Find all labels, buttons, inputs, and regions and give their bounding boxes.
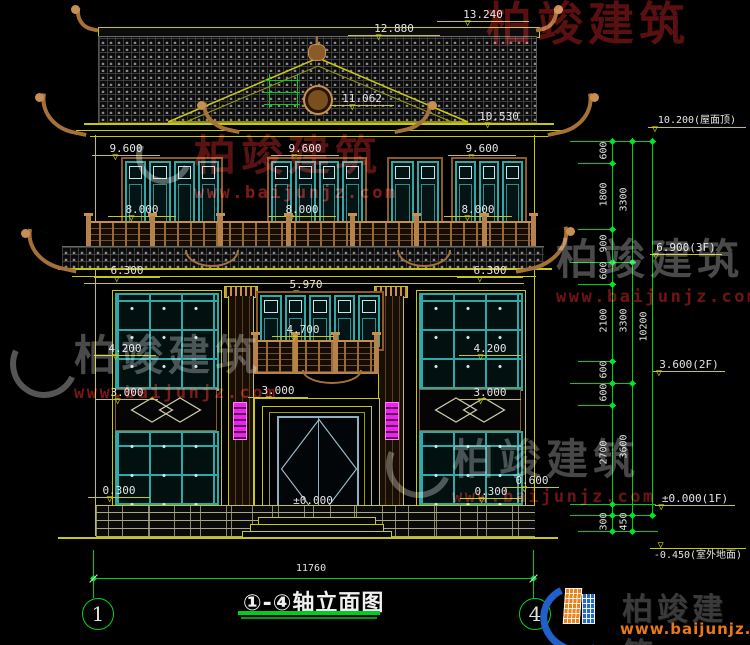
level-marker-icon: ▽: [658, 541, 664, 551]
dim-tick: [609, 138, 616, 145]
watermark-url: www.baijunjz.com: [194, 183, 398, 203]
gable-slope-ornament-right: [392, 106, 434, 130]
eave-horn-right: [544, 98, 596, 132]
elevation-marker: 0.300▽: [88, 484, 150, 498]
dim-segment: 600: [599, 371, 610, 415]
elevation-label: 11.062: [342, 92, 382, 105]
dim-tick: [649, 138, 656, 145]
level-marker-icon: ▽: [107, 495, 113, 505]
dim-segment: 10200: [639, 305, 650, 349]
overall-width-dim: 11760: [296, 563, 326, 574]
elevation-marker: 3.000▽: [459, 386, 521, 400]
dim-segment: 3300: [619, 178, 630, 222]
dim-tick: [629, 528, 636, 535]
watermark: 柏竣建筑 www.baijunjz.com: [556, 226, 750, 307]
level-marker-icon: ▽: [478, 353, 484, 363]
eave-garland: [302, 370, 362, 384]
level-marker-icon: ▽: [478, 397, 484, 407]
level-marker-icon: ▽: [485, 121, 491, 131]
ridge-end-ornament-left: [74, 10, 100, 30]
dim-segment: 600: [599, 129, 610, 173]
elevation-marker: 10.530▽: [463, 110, 535, 124]
gable-round-window: [303, 85, 333, 115]
elevation-marker: 4.200▽: [459, 342, 521, 356]
elevation-marker: 8.000▽: [108, 203, 176, 217]
dim-tick: [609, 160, 616, 167]
dim-tick: [649, 512, 656, 519]
level-marker-icon: ▽: [114, 275, 120, 285]
elevation-label: 10.200(屋面顶): [658, 115, 736, 126]
dim-tick: [629, 138, 636, 145]
elevation-marker: 6.300▽: [457, 264, 523, 278]
elevation-marker: 9.600▽: [448, 142, 516, 156]
dim-tick: [609, 528, 616, 535]
overall-dim-line: [93, 578, 533, 579]
elevation-drawing-canvas: 13.240▽ 12.880▽ 11.062▽ 10.530▽ 9.600▽ 9…: [0, 0, 750, 645]
dim-tick: [629, 512, 636, 519]
elevation-label: 3.600(2F): [659, 358, 719, 371]
elevation-marker: 12.880▽: [348, 22, 440, 36]
detail-dim-line: [264, 92, 300, 93]
watermark: 柏竣建筑 www.baijunjz.com: [136, 122, 398, 203]
level-marker-icon: ▽: [112, 153, 118, 163]
watermark-logo-icon: [377, 423, 462, 508]
dim-tick: [609, 512, 616, 519]
finial-ornament: [308, 44, 326, 61]
level-marker-icon: ▽: [652, 125, 658, 135]
dim-tick: [609, 358, 616, 365]
elevation-marker: 4.700▽: [272, 323, 334, 337]
elevation-marker: -0.450(室外地面)▽: [650, 548, 746, 562]
company-logo-url: www.baijunjz.com: [620, 620, 750, 638]
watermark-url: www.baijunjz.com: [556, 287, 750, 307]
axis-bubble-1: 1: [82, 598, 114, 630]
elevation-label: ±0.000(1F): [662, 492, 728, 505]
eave-horn-left: [38, 98, 90, 132]
elevation-marker: ±0.000(1F)▽: [655, 492, 735, 506]
watermark-brand: 柏竣建筑: [452, 435, 640, 484]
title-underline: [241, 617, 377, 619]
watermark-logo-icon: [128, 120, 200, 192]
elevation-marker: 10.200(屋面顶)▽: [648, 114, 746, 128]
ground-line: [58, 537, 558, 539]
company-logo: [540, 580, 620, 644]
dim-segment: 1800: [599, 173, 610, 217]
level-marker-icon: ▽: [349, 103, 355, 113]
level-marker-icon: ▽: [376, 33, 382, 43]
title-underline: [238, 611, 380, 615]
diamond-motif: [462, 397, 505, 422]
logo-tower-icon: [563, 588, 583, 624]
watermark-brand: 柏竣建筑: [486, 0, 690, 51]
elevation-marker: 3.600(2F)▽: [653, 358, 725, 372]
watermark-brand: 柏竣建筑: [74, 331, 262, 380]
elevation-marker: 8.000▽: [444, 203, 512, 217]
watermark-url: www.baijunjz.com: [452, 487, 656, 507]
railing-post: [374, 335, 379, 373]
elevation-marker: 6.300▽: [94, 264, 160, 278]
level-marker-icon: ▽: [656, 369, 662, 379]
detail-dim-line: [264, 104, 300, 105]
detail-dim-line: [264, 80, 300, 81]
eave-horn-left: [24, 234, 80, 268]
railing-post: [333, 335, 338, 373]
level-marker-icon: ▽: [477, 275, 483, 285]
level-marker-icon: ▽: [658, 503, 664, 513]
elevation-marker: 5.970▽: [274, 278, 338, 292]
watermark-brand: 柏竣建筑: [194, 131, 382, 180]
watermark-url: www.baijunjz.com: [74, 383, 278, 403]
dim-tick: [629, 380, 636, 387]
elevation-marker: 11.062▽: [330, 92, 394, 106]
axis-number: 1: [92, 602, 105, 626]
watermark: 柏竣建筑 www.baijunjz.com: [0, 322, 278, 403]
dim-tick: [609, 380, 616, 387]
level-marker-icon: ▽: [291, 334, 297, 344]
level-marker-icon: ▽: [465, 19, 471, 29]
dim-tick: [609, 402, 616, 409]
watermark: 柏竣建筑: [486, 0, 690, 54]
watermark: 柏竣建筑 www.baijunjz.com: [386, 426, 656, 507]
logo-tower-icon: [582, 594, 595, 624]
elevation-marker: 8.000▽: [268, 203, 336, 217]
watermark-brand: 柏竣建筑: [556, 235, 744, 284]
couplet-plaque-left: [233, 402, 247, 440]
elevation-label: -0.450(室外地面): [654, 550, 742, 561]
